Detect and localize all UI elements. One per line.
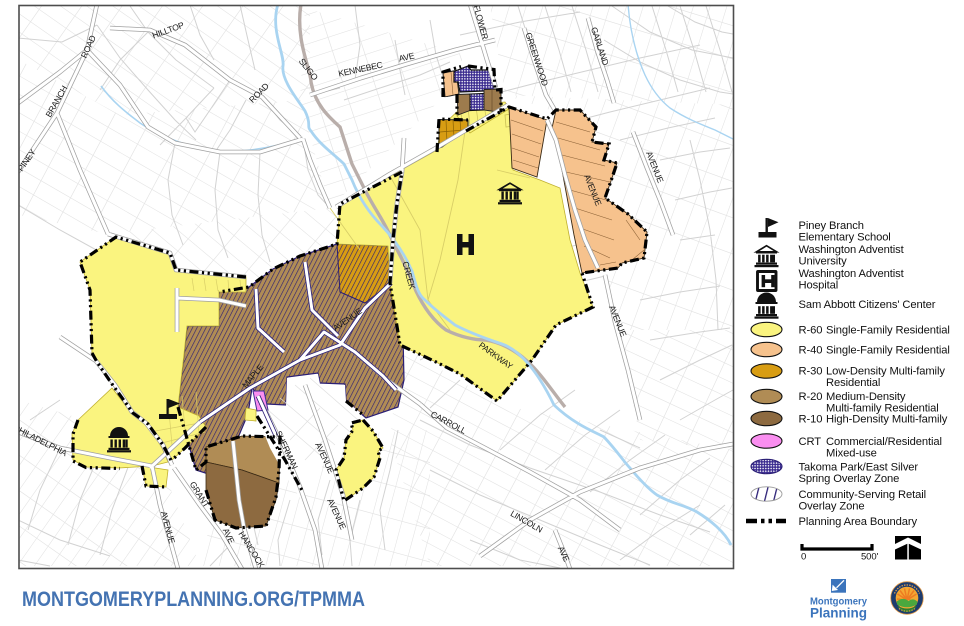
svg-text:MONTGOMERYPLANNING.ORG/TPMMA: MONTGOMERYPLANNING.ORG/TPMMA: [22, 588, 365, 611]
svg-text:R-60: R-60: [799, 325, 823, 337]
svg-text:R-30: R-30: [799, 366, 823, 378]
svg-text:Overlay Zone: Overlay Zone: [799, 501, 865, 513]
svg-text:Community-Serving Retail: Community-Serving Retail: [799, 489, 927, 501]
svg-text:R-10: R-10: [799, 414, 823, 426]
svg-text:Low-Density Multi-family: Low-Density Multi-family: [826, 366, 945, 378]
svg-text:Commercial/Residential: Commercial/Residential: [826, 436, 942, 448]
svg-text:University: University: [799, 256, 848, 268]
svg-text:Washington Adventist: Washington Adventist: [799, 268, 905, 280]
svg-text:Single-Family Residential: Single-Family Residential: [826, 325, 950, 337]
svg-text:Mixed-use: Mixed-use: [826, 448, 877, 460]
svg-text:Medium-Density: Medium-Density: [826, 391, 906, 403]
svg-text:Planning Area Boundary: Planning Area Boundary: [799, 516, 918, 528]
svg-text:Hospital: Hospital: [799, 280, 839, 292]
svg-text:Takoma Park/East Silver: Takoma Park/East Silver: [799, 462, 919, 474]
svg-text:Single-Family Residential: Single-Family Residential: [826, 345, 950, 357]
svg-text:Planning: Planning: [810, 605, 867, 621]
svg-text:CRT: CRT: [799, 436, 822, 448]
svg-text:High-Density Multi-family: High-Density Multi-family: [826, 414, 948, 426]
svg-text:Sam Abbott Citizens' Center: Sam Abbott Citizens' Center: [799, 299, 936, 311]
svg-text:R-20: R-20: [799, 391, 823, 403]
svg-text:R-40: R-40: [799, 345, 823, 357]
svg-text:500': 500': [861, 552, 879, 563]
svg-text:Piney Branch: Piney Branch: [799, 220, 864, 232]
svg-text:0: 0: [801, 552, 806, 563]
svg-text:Spring Overlay Zone: Spring Overlay Zone: [799, 473, 900, 485]
svg-text:Washington Adventist: Washington Adventist: [799, 244, 905, 256]
svg-text:Residential: Residential: [826, 377, 880, 389]
svg-text:Elementary School: Elementary School: [799, 232, 891, 244]
